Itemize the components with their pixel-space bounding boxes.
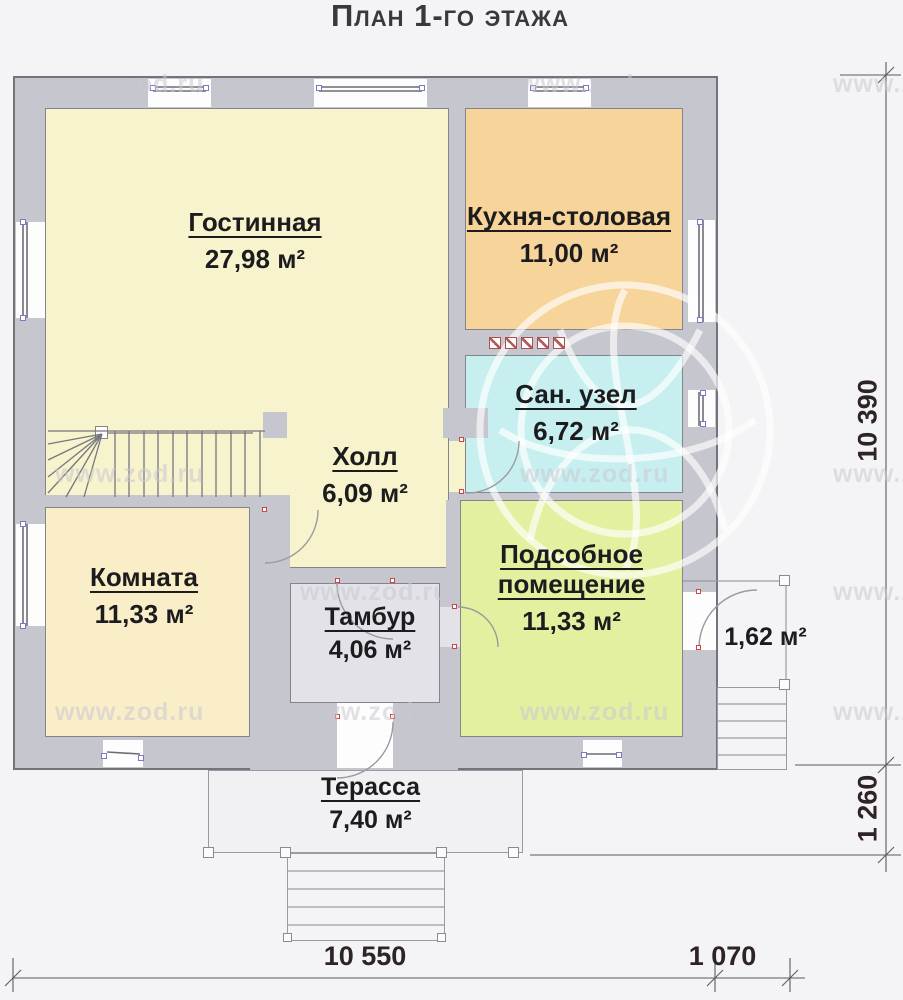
- window-marker: [20, 315, 26, 321]
- window-top-1: [148, 79, 211, 107]
- dimension-right-total: 10 390: [853, 331, 884, 511]
- wall-kitchen-bottom: [449, 330, 683, 355]
- terrace-post: [436, 847, 447, 858]
- hinge-marker: [335, 578, 340, 583]
- window-marker: [616, 752, 622, 758]
- vent-shaft: [489, 337, 501, 349]
- window-marker: [20, 219, 26, 225]
- dimension-bottom-total: 10 550: [265, 941, 465, 972]
- floor-plan-canvas: План 1-го этажа: [0, 0, 903, 1000]
- window-top-2: [314, 79, 427, 107]
- window-marker: [419, 85, 425, 91]
- room-hall-area: 6,09 м²: [290, 479, 440, 509]
- porch-post: [779, 679, 790, 690]
- porch-steps: [717, 687, 787, 770]
- window-marker: [203, 85, 209, 91]
- window-marker: [20, 623, 26, 629]
- terrace-steps: [287, 853, 445, 941]
- window-left-1: [16, 222, 45, 318]
- room-vestibule-label: Тамбур 4,06 м²: [298, 603, 442, 665]
- window-marker: [700, 390, 706, 396]
- window-right-kitchen: [688, 220, 715, 322]
- room-utility-area: 11,33 м²: [463, 607, 680, 637]
- hinge-marker: [459, 489, 464, 494]
- terrace-post: [508, 847, 519, 858]
- wall-vestibule-top-right: [393, 568, 440, 583]
- window-marker: [697, 219, 703, 225]
- window-marker: [530, 85, 536, 91]
- hinge-marker: [696, 589, 701, 594]
- room-terrace-name: Терасса: [293, 773, 448, 802]
- watermark-tile: www.zod.ru: [833, 578, 903, 607]
- room-vestibule-area: 4,06 м²: [298, 636, 442, 665]
- window-marker: [581, 752, 587, 758]
- terrace-post: [203, 847, 214, 858]
- wall-vestibule-top-left: [290, 568, 337, 583]
- hinge-marker: [335, 714, 340, 719]
- room-porch-area: 1,62 м²: [708, 623, 823, 652]
- vent-shaft: [521, 337, 533, 349]
- window-marker: [316, 85, 322, 91]
- window-marker: [700, 421, 706, 427]
- hinge-marker: [459, 437, 464, 442]
- door-opening-terrace: [337, 703, 393, 768]
- vent-shaft: [505, 337, 517, 349]
- room-bedroom-name: Комната: [38, 563, 250, 593]
- window-marker: [150, 85, 156, 91]
- window-top-3: [528, 79, 591, 107]
- room-bedroom-label: Комната 11,33 м²: [38, 563, 250, 630]
- room-living-area: 27,98 м²: [115, 245, 395, 275]
- window-marker: [697, 317, 703, 323]
- room-utility-label: Подсобное помещение 11,33 м²: [463, 540, 680, 637]
- room-utility-name: Подсобное помещение: [463, 540, 680, 600]
- room-porch-label: 1,62 м²: [708, 623, 823, 652]
- room-kitchen-label: Кухня-столовая 11,00 м²: [452, 202, 686, 269]
- room-bedroom-area: 11,33 м²: [38, 600, 250, 630]
- window-marker: [20, 521, 26, 527]
- window-marker: [583, 85, 589, 91]
- terrace-post: [280, 847, 291, 858]
- dimension-bottom-right: 1 070: [660, 941, 785, 972]
- window-marker: [138, 755, 144, 761]
- hinge-marker: [262, 507, 267, 512]
- hinge-marker: [390, 578, 395, 583]
- hinge-marker: [696, 645, 701, 650]
- stair-wall-block: [263, 412, 287, 438]
- door-opening-bathroom: [449, 441, 465, 492]
- hinge-marker: [452, 604, 457, 609]
- room-kitchen-area: 11,00 м²: [452, 239, 686, 269]
- vent-shaft: [537, 337, 549, 349]
- room-vestibule-name: Тамбур: [298, 603, 442, 632]
- stair-newel-post: [95, 426, 108, 439]
- dimension-right-lower: 1 260: [853, 719, 884, 899]
- room-hall-label: Холл 6,09 м²: [290, 442, 440, 509]
- room-terrace-area: 7,40 м²: [293, 806, 448, 835]
- wall-bath-utility: [449, 493, 683, 500]
- window-bottom-bedroom: [103, 740, 143, 767]
- room-hall-name: Холл: [290, 442, 440, 472]
- plan-title: План 1-го этажа: [230, 0, 670, 34]
- hinge-marker: [452, 644, 457, 649]
- door-opening-vestibule-utility: [440, 607, 460, 647]
- room-kitchen-name: Кухня-столовая: [452, 202, 686, 232]
- room-bathroom-name: Сан. узел: [470, 380, 682, 410]
- wall-bedroom-top: [45, 495, 266, 507]
- room-living-label: Гостинная 27,98 м²: [115, 208, 395, 275]
- room-terrace-label: Терасса 7,40 м²: [293, 773, 448, 835]
- watermark-tile: www.zod.ru: [833, 70, 903, 99]
- room-living-name: Гостинная: [115, 208, 395, 238]
- vent-shaft: [553, 337, 565, 349]
- room-bathroom-label: Сан. узел 6,72 м²: [470, 380, 682, 447]
- room-bathroom-area: 6,72 м²: [470, 417, 682, 447]
- hinge-marker: [390, 714, 395, 719]
- window-marker: [101, 753, 107, 759]
- porch-post: [779, 575, 790, 586]
